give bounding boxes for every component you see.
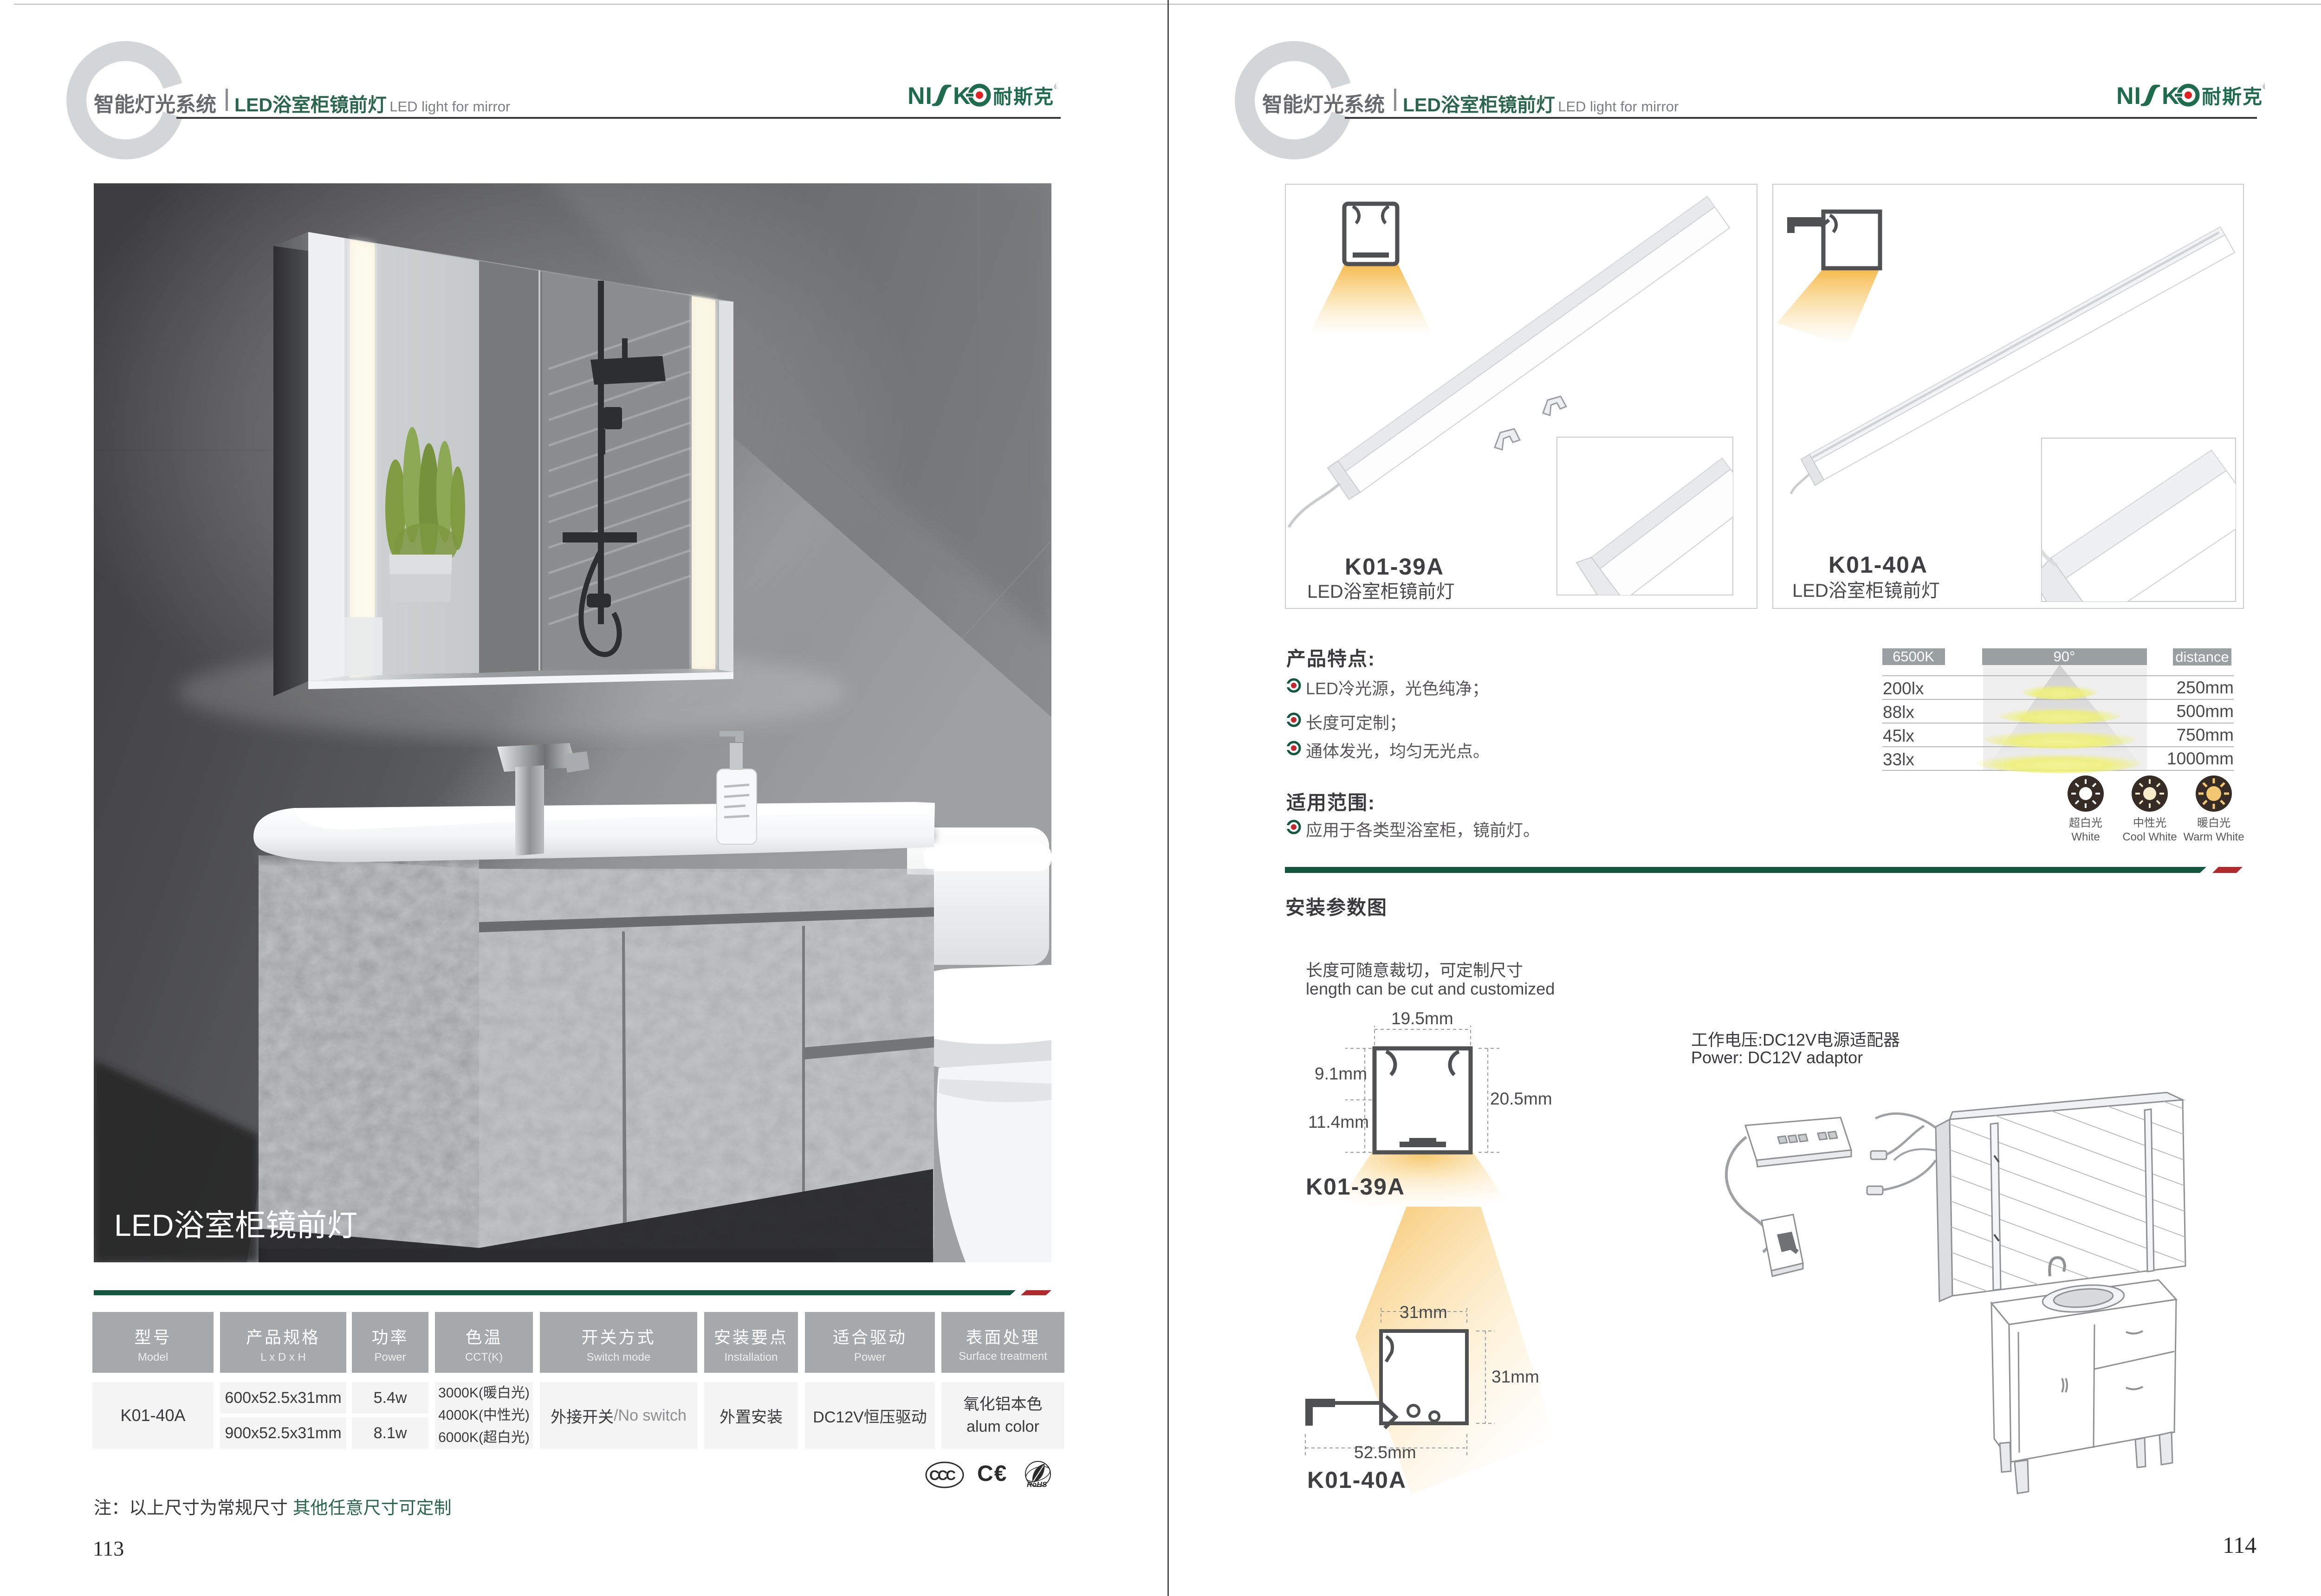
svg-text:500mm: 500mm [2177, 702, 2234, 721]
svg-text:200lx: 200lx [1883, 679, 1924, 698]
svg-text:耐斯克: 耐斯克 [993, 86, 1054, 108]
svg-text:K01-39A: K01-39A [1345, 554, 1444, 580]
svg-text:RoHS: RoHS [1027, 1481, 1047, 1489]
svg-text:LED浴室柜镜前灯: LED浴室柜镜前灯 [1307, 582, 1455, 602]
svg-text:6500K: 6500K [1893, 648, 1934, 665]
svg-text:750mm: 750mm [2177, 725, 2234, 744]
svg-text:®: ® [2263, 84, 2265, 91]
svg-text:9.1mm: 9.1mm [1315, 1064, 1367, 1083]
svg-text:超白光: 超白光 [2069, 817, 2102, 829]
svg-text:®: ® [1054, 84, 1056, 91]
svg-text:K01-39A: K01-39A [1306, 1174, 1405, 1200]
svg-text:88lx: 88lx [1883, 703, 1914, 722]
svg-text:250mm: 250mm [2177, 678, 2234, 697]
svg-text:19.5mm: 19.5mm [1391, 1012, 1453, 1028]
svg-text:NI: NI [908, 84, 933, 109]
svg-text:Cool White: Cool White [2122, 831, 2177, 842]
svg-text:52.5mm: 52.5mm [1354, 1443, 1416, 1462]
svg-text:45lx: 45lx [1883, 726, 1914, 745]
svg-text:31mm: 31mm [1400, 1303, 1447, 1322]
svg-text:中性光: 中性光 [2133, 817, 2166, 829]
svg-text:White: White [2071, 831, 2100, 842]
svg-text:90°: 90° [2054, 648, 2075, 665]
svg-text:耐斯克: 耐斯克 [2202, 86, 2263, 108]
svg-text:31mm: 31mm [1491, 1367, 1539, 1386]
svg-text:distance: distance [2175, 649, 2229, 665]
svg-text:LED浴室柜镜前灯: LED浴室柜镜前灯 [114, 1208, 357, 1242]
svg-text:LED浴室柜镜前灯: LED浴室柜镜前灯 [1792, 581, 1940, 601]
svg-text:K01-40A: K01-40A [1828, 552, 1928, 578]
svg-text:1000mm: 1000mm [2167, 749, 2234, 768]
svg-text:11.4mm: 11.4mm [1308, 1112, 1369, 1131]
svg-text:Warm White: Warm White [2183, 831, 2244, 842]
svg-text:NI: NI [2116, 84, 2141, 109]
svg-text:20.5mm: 20.5mm [1490, 1089, 1552, 1108]
svg-text:33lx: 33lx [1883, 750, 1914, 769]
svg-text:CCC: CCC [929, 1468, 955, 1483]
svg-text:暖白光: 暖白光 [2197, 817, 2230, 829]
svg-text:K01-40A: K01-40A [1307, 1467, 1407, 1493]
